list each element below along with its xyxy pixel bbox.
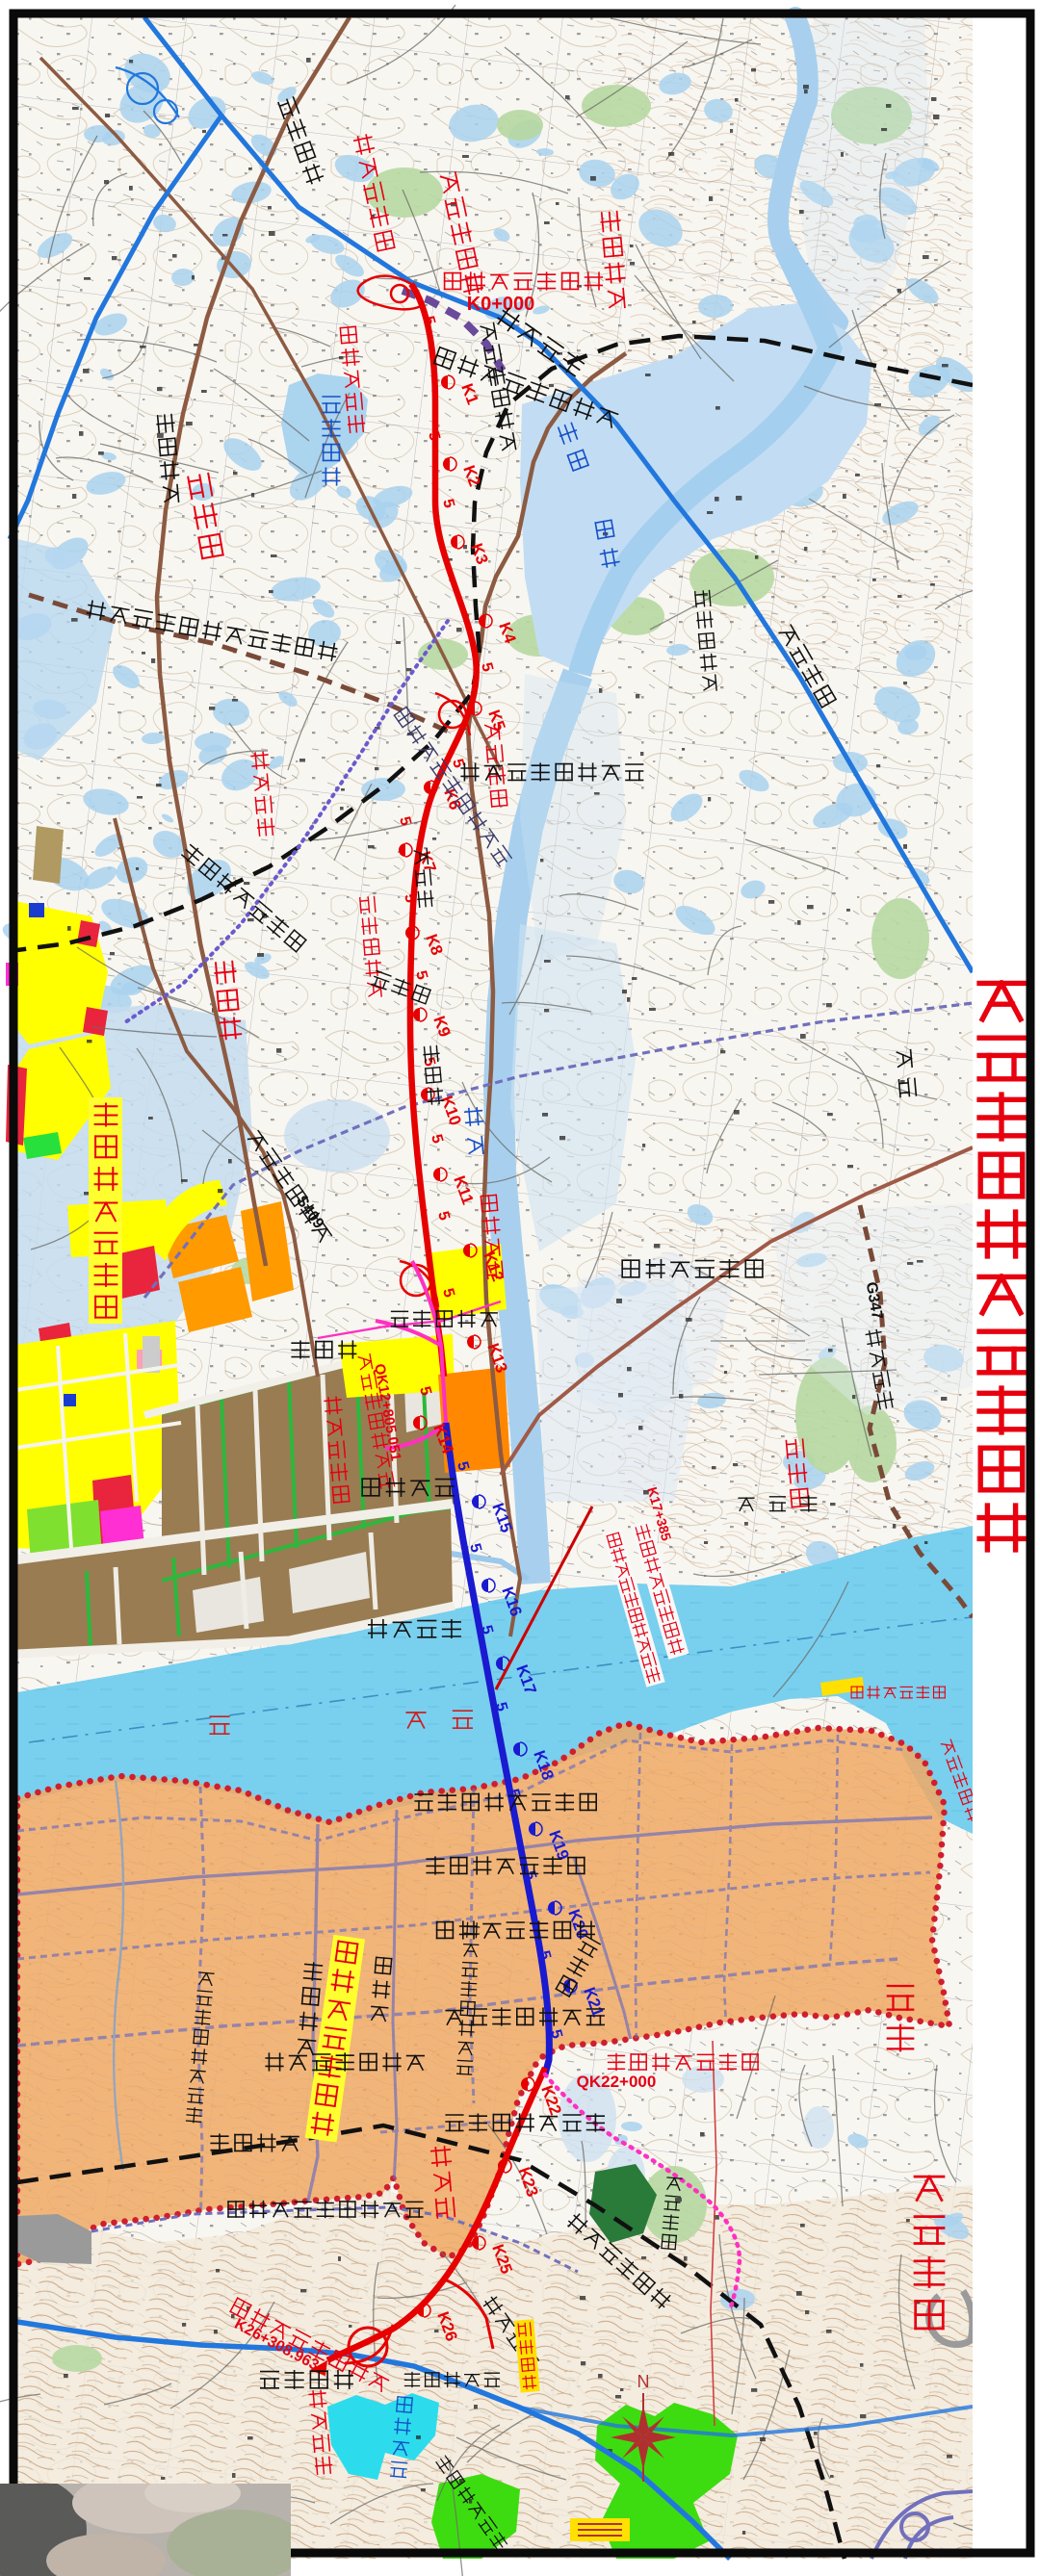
svg-text:QK22+000: QK22+000 (577, 2073, 657, 2091)
svg-text:K0+000: K0+000 (467, 294, 535, 315)
svg-text:N: N (637, 2372, 650, 2391)
